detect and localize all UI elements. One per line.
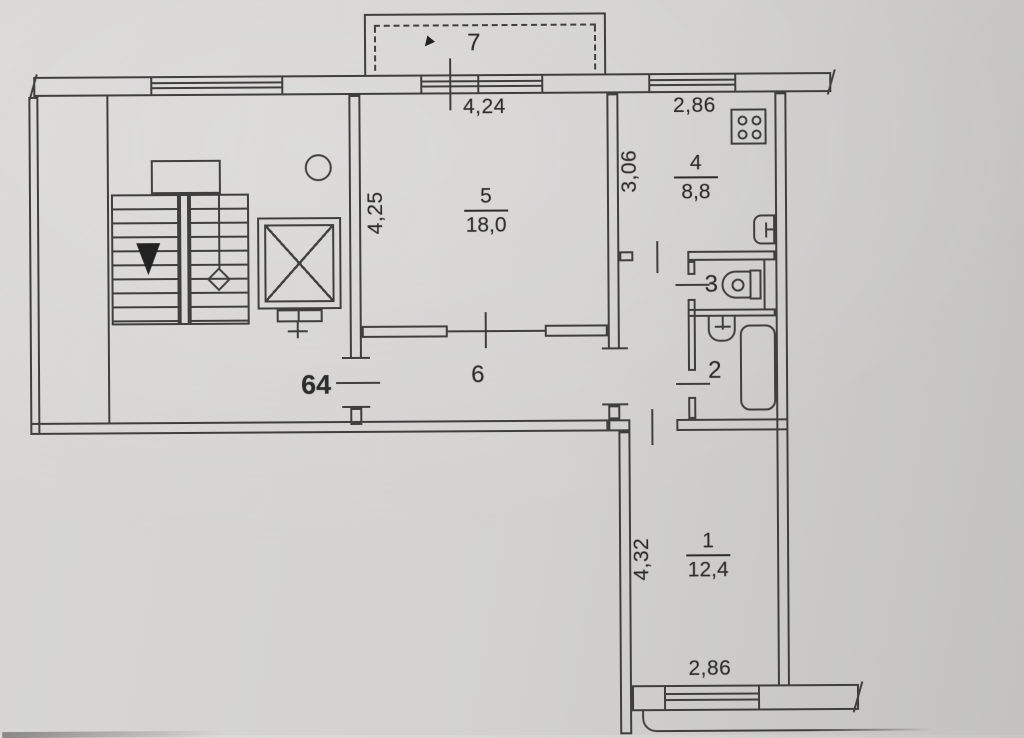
stairs-direction-arrow-icon [136,243,160,275]
room1-window [664,684,760,711]
wall-corridor-right [687,261,695,275]
wall-bath-room1 [676,418,788,431]
wall-right-external [774,92,790,686]
wall-left-external [28,97,40,435]
dim-living-width: 4,24 [463,95,506,119]
room1-area: 12,4 [686,556,730,582]
door-jamb-tick [602,347,628,349]
room1-label: 1 12,4 [686,529,730,582]
wall-wc-bathroom [688,308,776,317]
stove-icon [730,108,766,144]
balcony-number: 7 [467,29,481,57]
wall-living-hall [545,324,608,336]
door-jamb-tick [342,357,370,359]
lower-balcony-outline [642,709,944,732]
room1-number: 1 [686,529,730,556]
dim-room1-depth: 4,32 [630,538,654,581]
kitchen-number: 4 [674,151,718,178]
floor-plan: 7 64 4,24 4,25 5 18,0 2,86 3,06 4 8,8 [0,0,1024,738]
washbasin-icon [708,317,736,342]
toilet-icon [721,271,751,299]
kitchen-window [648,73,736,94]
wall-corridor-room1 [608,419,630,431]
balcony-dashed-line [594,25,596,69]
wall-stair-apartment [348,95,362,359]
kitchen-label: 4 8,8 [674,151,718,204]
kitchen-sink-icon [753,214,775,244]
elevator-icon [264,224,334,302]
wall-living-hall [362,325,448,338]
wall-living-kitchen [606,93,620,349]
living-room-window [420,74,543,95]
living-room-number: 5 [464,185,508,212]
door-jamb-tick [342,406,370,408]
kitchen-area: 8,8 [674,178,718,204]
bathroom-door-tick [676,383,710,385]
wall-hall-bottom [30,419,608,435]
hallway-number: 6 [471,361,485,389]
wc-number: 3 [704,271,718,299]
opening-threshold [448,330,545,333]
wall-stair-apartment [350,408,362,425]
garbage-chute-icon [305,154,332,181]
wall-kitchen-corridor [619,251,633,261]
wall-kitchen-corridor [687,250,775,261]
dim-living-depth: 4,25 [364,191,388,234]
stair-landing [151,160,221,194]
balcony-outline [364,12,606,76]
room1-door-tick [651,409,653,445]
stairwell-inner-wall [106,96,110,422]
bathroom-number: 2 [708,357,722,385]
living-room-label: 5 18,0 [464,185,508,238]
elevator-axis-tick [288,330,308,332]
bathtub-icon [740,324,777,410]
stairwell-window [150,75,283,96]
dim-kitchen-depth: 3,06 [618,150,642,193]
entrance-door-tick [336,382,380,384]
wall-room1-left [618,431,632,734]
door-tick [485,312,487,348]
wall-corridor-right [688,397,696,419]
window-divider [477,74,479,94]
dim-kitchen-width: 2,86 [673,94,716,118]
apartment-number: 64 [301,370,331,401]
elevator-door-divider [298,309,300,322]
dim-room1-width: 2,86 [688,657,731,681]
balcony-dashed-line [374,27,376,71]
kitchen-door-tick [656,241,658,273]
wall-hall-corridor [608,405,620,419]
door-jamb-tick [602,403,628,405]
living-room-area: 18,0 [464,212,508,238]
photo-edge-shadow [2,731,222,738]
duct-line [763,260,765,308]
